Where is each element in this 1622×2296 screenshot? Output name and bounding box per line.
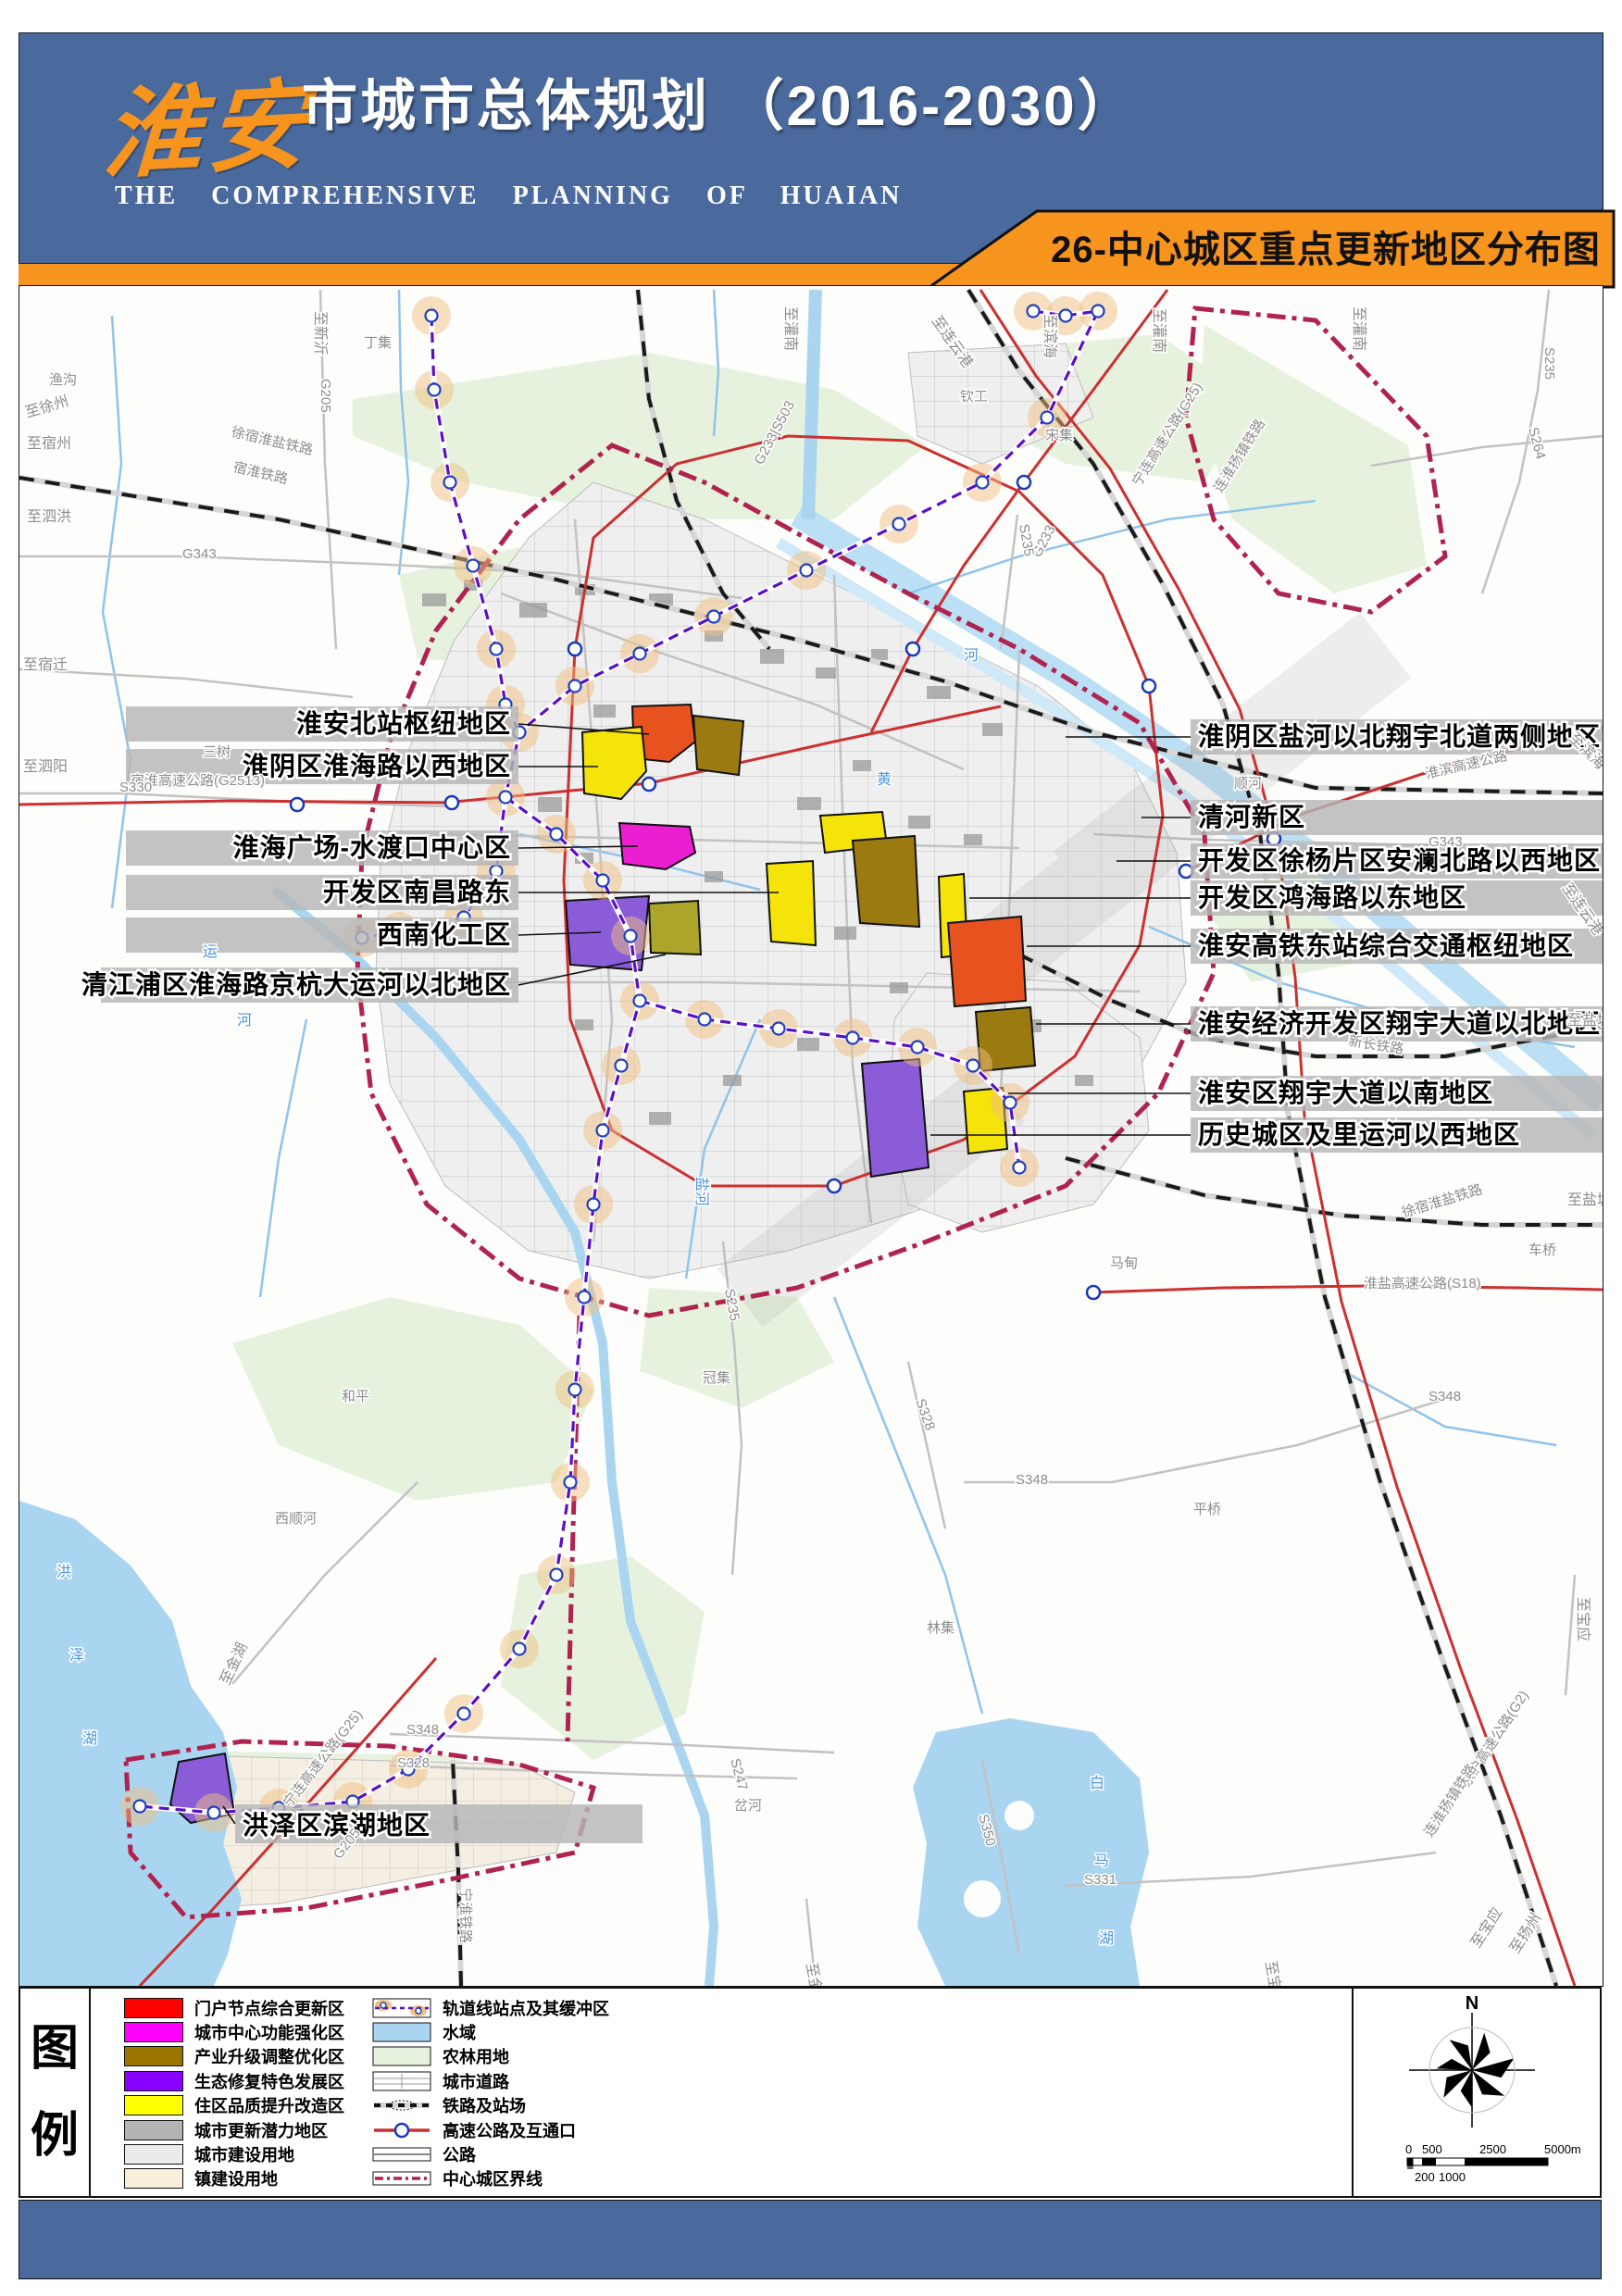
metro-station: [429, 384, 441, 396]
district-qingjiangpu-north: [649, 901, 701, 955]
map-label: 河: [237, 1012, 252, 1029]
metro-station: [967, 1060, 979, 1072]
metro-station: [773, 1023, 785, 1035]
map-label: G343: [1429, 834, 1463, 850]
metro-station: [569, 680, 581, 693]
map-label: S348: [406, 1722, 439, 1738]
map-label: 湖: [1099, 1930, 1114, 1947]
map-label: 顺河: [1234, 776, 1262, 792]
water-icon: [372, 2022, 431, 2042]
map-label: 至宝应: [1575, 1597, 1592, 1641]
legend-area-item: 生态修复特色发展区: [124, 2069, 344, 2092]
metro-station: [634, 995, 646, 1007]
metro-station: [426, 310, 438, 322]
legend-area-label: 镇建设用地: [194, 2166, 278, 2190]
map-label: 马: [1094, 1853, 1109, 1869]
legend-body: 门户节点综合更新区城市中心功能强化区产业升级调整优化区生态修复特色发展区住区品质…: [91, 1989, 1352, 2196]
district-nanchang-road-east: [767, 861, 816, 945]
metro-station: [491, 643, 503, 655]
city-road-icon: [372, 2071, 431, 2091]
legend-area-item: 城市更新潜力地区: [124, 2118, 344, 2141]
map-label: 冠集: [703, 1370, 730, 1386]
legend-symbol-column: 轨道线站点及其缓冲区水域农林用地城市道路铁路及站场高速公路及互通口公路中心城区界…: [372, 1996, 609, 2190]
map-label: 至滨海: [1042, 314, 1058, 358]
map-label: 盐河: [693, 1177, 710, 1206]
map-label: 至灌南: [1151, 308, 1167, 353]
map-label: 至泗阳: [23, 758, 68, 775]
map-label: 马甸: [1110, 1255, 1138, 1271]
legend-symbol-label: 高速公路及互通口: [443, 2118, 576, 2142]
map-label: G205: [318, 379, 333, 413]
metro-station: [1092, 306, 1104, 318]
callout-label: 清河新区: [1198, 803, 1305, 831]
farmland-icon: [372, 2046, 431, 2066]
metro-station: [1004, 1097, 1017, 1109]
map-label: 平桥: [1193, 1502, 1221, 1517]
metro-station: [597, 875, 609, 887]
map-label: 至宿州: [27, 435, 71, 452]
legend-symbol-label: 铁路及站场: [443, 2093, 526, 2117]
legend-area-swatch: [124, 2022, 183, 2042]
metro-station: [597, 1125, 609, 1137]
legend-area-label: 城市建设用地: [194, 2142, 294, 2166]
banner-title: 26-中心城区重点更新地区分布图: [1051, 230, 1601, 270]
legend-area-item: 城市中心功能强化区: [124, 2020, 344, 2043]
metro-station: [977, 477, 989, 489]
legend-area-swatch: [124, 2168, 183, 2189]
legend-symbol-item: 铁路及站场: [372, 2094, 609, 2117]
metro-station: [500, 792, 512, 804]
map-label: 岔河: [734, 1798, 762, 1814]
map-label: 至宿迁: [23, 656, 68, 673]
svg-text:5000m: 5000m: [1544, 2142, 1581, 2156]
map-label: 白: [1090, 1775, 1104, 1791]
legend-area-item: 城市建设用地: [124, 2143, 344, 2166]
metro-station: [1014, 1162, 1026, 1174]
map-label: 西顺河: [275, 1511, 317, 1527]
legend-area-item: 产业升级调整优化区: [124, 2045, 344, 2068]
city-calligraphy-logo: 淮安: [100, 44, 316, 198]
metro-station: [458, 1708, 470, 1720]
metro-station: [579, 1291, 591, 1304]
metro-station: [565, 1477, 577, 1489]
map-label: 河: [964, 647, 979, 664]
svg-text:1000: 1000: [1439, 2170, 1466, 2184]
map-label: 至盐城: [1567, 1192, 1603, 1208]
callout-label: 淮阴区淮海路以西地区: [243, 752, 511, 780]
map-label: S328: [397, 1755, 430, 1771]
district-hsr-east-station: [948, 917, 1026, 1006]
metro-station: [444, 477, 456, 489]
callout-label: 开发区南昌路东: [323, 877, 511, 906]
railway-icon: [372, 2095, 431, 2115]
map-label: 泽: [69, 1647, 84, 1664]
map-label: 至灌南: [1351, 306, 1367, 351]
map-label: 至泗洪: [27, 508, 71, 525]
legend-area-swatch: [124, 1998, 183, 2018]
legend-area-swatch: [124, 2046, 183, 2066]
legend-symbol-item: 中心城区界线: [372, 2167, 609, 2190]
map-label: 和平: [342, 1389, 369, 1404]
legend-area-label: 城市中心功能强化区: [194, 2020, 344, 2044]
district-xuyang: [853, 836, 919, 927]
map-label: G343: [182, 546, 217, 562]
map-area[interactable]: 淮安北站枢纽地区淮阴区淮海路以西地区淮海广场-水渡口中心区开发区南昌路东西南化工…: [19, 285, 1603, 1987]
map-label: S348: [1429, 1389, 1461, 1404]
metro-station: [616, 1060, 628, 1072]
callout-label: 淮安北站枢纽地区: [296, 708, 511, 738]
callout-label: 淮海广场-水渡口中心区: [233, 833, 511, 862]
compass-scale-graphic: N 0 500: [1354, 1989, 1596, 2196]
map-label: 车桥: [1528, 1242, 1556, 1258]
legend: 图 例 门户节点综合更新区城市中心功能强化区产业升级调整优化区生态修复特色发展区…: [19, 1987, 1602, 2198]
metro-station: [625, 930, 637, 942]
map-label: 运: [203, 943, 218, 960]
map-label: S348: [1016, 1472, 1048, 1488]
svg-text:0: 0: [1405, 2142, 1412, 2156]
legend-area-item: 镇建设用地: [124, 2167, 344, 2190]
map-label: 洪: [56, 1564, 71, 1580]
expressway-icon: [372, 2120, 431, 2140]
callout-label: 淮安经济开发区翔宇大道以北地区: [1198, 1008, 1601, 1038]
callout-label: 淮阴区盐河以北翔宇北道两侧地区: [1198, 721, 1601, 751]
highway-icon: [372, 2144, 431, 2165]
metro-station: [912, 1042, 924, 1054]
legend-symbol-label: 中心城区界线: [443, 2166, 543, 2190]
callout-label: 历史城区及里运河以西地区: [1198, 1120, 1520, 1149]
svg-text:200: 200: [1415, 2170, 1435, 2184]
metro-station: [588, 1199, 600, 1211]
metro-station: [708, 611, 720, 623]
map-label: 宋集: [1045, 428, 1073, 443]
legend-symbol-label: 水域: [443, 2020, 476, 2044]
legend-title-char: 图: [31, 2025, 79, 2073]
map-label: 三树: [203, 744, 231, 760]
map-label: 淮盐高速公路(S18): [1364, 1276, 1481, 1291]
legend-symbol-item: 水域: [372, 2020, 609, 2043]
metro-station: [1042, 412, 1054, 424]
rail-transit-icon: [372, 1998, 431, 2018]
map-number-banner: 26-中心城区重点更新地区分布图: [928, 209, 1616, 289]
map-label: 至新沂: [312, 311, 329, 356]
callout-label: 开发区徐杨片区安澜北路以西地区: [1198, 845, 1601, 875]
metro-station: [801, 565, 813, 577]
legend-area-label: 产业升级调整优化区: [194, 2044, 344, 2068]
legend-area-swatch: [124, 2120, 183, 2140]
legend-area-item: 门户节点综合更新区: [124, 1996, 344, 2019]
legend-symbol-label: 城市道路: [443, 2069, 509, 2093]
callout-label: 开发区鸿海路以东地区: [1198, 882, 1466, 912]
planning-map-page: 淮安 市城市总体规划 （2016-2030） THE COMPREHENSIVE…: [0, 0, 1622, 2296]
legend-area-swatch: [124, 2144, 183, 2165]
metro-station: [847, 1032, 859, 1044]
map-label: 至盐城: [1567, 1012, 1603, 1029]
boundary-icon: [372, 2168, 431, 2189]
legend-title: 图 例: [20, 1989, 91, 2196]
callout-label: 西南化工区: [377, 920, 511, 949]
scale-bar: 0 500 2500 5000m 200 1000: [1405, 2142, 1581, 2184]
map-label: S330: [119, 780, 152, 795]
legend-symbol-label: 公路: [443, 2142, 476, 2166]
map-label: 渔沟: [49, 372, 77, 388]
metro-station: [699, 1014, 711, 1026]
footer-bar: [19, 2200, 1602, 2279]
map-label: S235: [1541, 347, 1557, 380]
svg-text:500: 500: [1422, 2142, 1442, 2156]
metro-station: [468, 560, 480, 572]
metro-station: [634, 648, 646, 660]
page-title: 市城市总体规划 （2016-2030）: [302, 61, 1136, 142]
legend-area-swatch: [124, 2095, 183, 2115]
metro-station: [514, 1643, 526, 1655]
metro-station: [208, 1807, 220, 1819]
callout-label: 淮安高铁东站综合交通枢纽地区: [1198, 930, 1574, 960]
legend-symbol-item: 公路: [372, 2143, 609, 2166]
legend-symbol-item: 高速公路及互通口: [372, 2118, 609, 2141]
legend-area-item: 住区品质提升改造区: [124, 2094, 344, 2117]
legend-symbol-item: 城市道路: [372, 2069, 609, 2092]
map-label: 至灌南: [782, 306, 799, 351]
map-canvas[interactable]: 淮安北站枢纽地区淮阴区淮海路以西地区淮海广场-水渡口中心区开发区南昌路东西南化工…: [19, 286, 1603, 1986]
svg-text:2500: 2500: [1479, 2142, 1506, 2156]
page-subtitle: THE COMPREHENSIVE PLANNING OF HUAIAN: [115, 181, 902, 211]
map-label: 林集: [927, 1620, 954, 1636]
legend-area-label: 住区品质提升改造区: [194, 2093, 344, 2117]
callout-label: 清江浦区淮海路京杭大运河以北地区: [81, 969, 511, 999]
map-label: 湖: [82, 1730, 97, 1747]
compass-north-label: N: [1466, 1993, 1479, 2014]
legend-title-char: 例: [31, 2112, 79, 2160]
map-label: S331: [1084, 1872, 1117, 1888]
legend-area-swatch: [124, 2071, 183, 2091]
legend-symbol-item: 轨道线站点及其缓冲区: [372, 1996, 609, 2019]
legend-area-label: 生态修复特色发展区: [194, 2069, 344, 2093]
map-label: 黄: [877, 771, 892, 788]
legend-symbol-label: 农林用地: [443, 2044, 509, 2068]
callout-label: 淮安区翔宇大道以南地区: [1198, 1078, 1493, 1107]
legend-area-column: 门户节点综合更新区城市中心功能强化区产业升级调整优化区生态修复特色发展区住区品质…: [124, 1996, 344, 2190]
district-historic-city: [862, 1059, 929, 1177]
metro-station: [551, 1569, 563, 1581]
compass-panel: N 0 500: [1352, 1989, 1600, 2196]
metro-station: [569, 1384, 581, 1396]
legend-symbol-item: 农林用地: [372, 2045, 609, 2068]
metro-station: [134, 1801, 146, 1813]
legend-area-label: 城市更新潜力地区: [194, 2118, 328, 2142]
legend-area-label: 门户节点综合更新区: [194, 1996, 344, 2020]
metro-station: [551, 829, 563, 841]
map-label: 丁集: [364, 335, 392, 351]
district-industry-north: [693, 716, 743, 775]
callout-label: 洪泽区滨湖地区: [243, 1811, 430, 1840]
map-label: 钦工: [960, 389, 988, 405]
metro-station: [1060, 310, 1072, 322]
legend-symbol-label: 轨道线站点及其缓冲区: [443, 1996, 609, 2020]
metro-station: [893, 518, 905, 530]
metro-station: [1028, 306, 1040, 318]
map-label: 宁淮铁路: [457, 1888, 473, 1943]
